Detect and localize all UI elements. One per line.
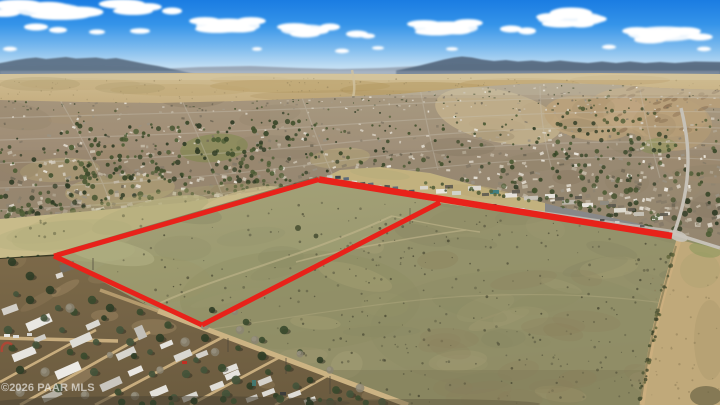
svg-text:©2026 PAAR MLS: ©2026 PAAR MLS (1, 382, 95, 394)
